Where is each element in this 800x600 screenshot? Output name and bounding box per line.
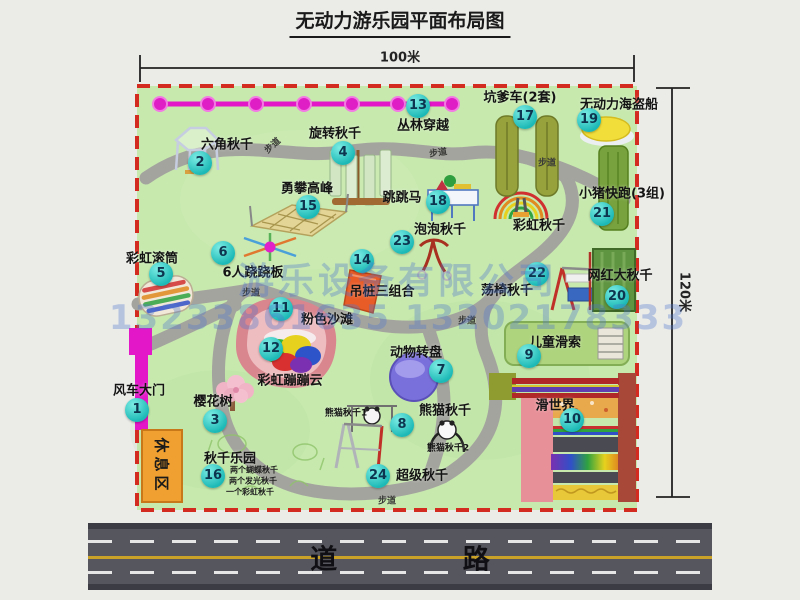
badge-12: 12: [259, 337, 283, 361]
badge-4: 4: [331, 141, 355, 165]
label-rainbow-swing-arches: 彩虹秋千: [513, 215, 565, 234]
badge-7: 7: [429, 359, 453, 383]
label-panda-swing-1: 熊猫秋千1: [325, 406, 367, 419]
label-rest-area: 休息区: [152, 437, 173, 494]
trail-label: 步道: [242, 286, 260, 299]
trail-label: 步道: [378, 494, 396, 507]
width-dimension-label: 100米: [380, 47, 420, 66]
badge-20: 20: [605, 285, 629, 309]
label-seesaw: 6人跷跷板: [222, 262, 283, 281]
badge-11: 11: [269, 297, 293, 321]
label-swing-chair: 荡椅秋千: [481, 280, 533, 299]
label-piggy-run: 小猪快跑(3组): [579, 183, 665, 202]
trail-label: 步道: [458, 314, 476, 327]
badge-13: 13: [406, 94, 430, 118]
label-panda-swing-2: 熊猫秋千2: [427, 441, 469, 454]
road-label: 道 路: [252, 537, 547, 576]
label-jungle-crossing: 丛林穿越: [397, 115, 449, 134]
badge-15: 15: [296, 195, 320, 219]
swing-park-note-3: 一个彩虹秋千: [226, 487, 274, 498]
badge-3: 3: [203, 409, 227, 433]
label-panda-swing: 熊猫秋千: [419, 400, 471, 419]
badge-23: 23: [390, 230, 414, 254]
badge-24: 24: [366, 464, 390, 488]
label-hexagon-swing: 六角秋千: [201, 134, 253, 153]
label-rotating-swing: 旋转秋千: [309, 123, 361, 142]
trail-label: 步道: [538, 156, 556, 169]
height-dimension-label: 120米: [677, 272, 696, 312]
label-bubble-swing: 泡泡秋千: [414, 219, 466, 238]
label-kart-track: 坑爹车(2套): [484, 87, 557, 106]
label-rainbow-roller: 彩虹滚筒: [126, 248, 178, 267]
swing-park-note-2: 两个发光秋千: [229, 476, 277, 487]
park-map-page: 无动力游乐园平面布局图 100米 120米 步道 步道 步道 步道 步道 步道 …: [0, 0, 800, 600]
label-super-swing: 超级秋千: [396, 465, 448, 484]
road: 道 路: [88, 523, 712, 590]
badge-10: 10: [560, 408, 584, 432]
badge-14: 14: [350, 249, 374, 273]
badge-18: 18: [426, 190, 450, 214]
badge-16: 16: [201, 464, 225, 488]
label-jumping-horse: 跳跳马: [382, 187, 421, 206]
badge-9: 9: [517, 344, 541, 368]
label-big-swing: 网红大秋千: [587, 265, 652, 284]
badge-1: 1: [125, 398, 149, 422]
badge-5: 5: [149, 262, 173, 286]
badge-22: 22: [525, 262, 549, 286]
label-rainbow-cloud: 彩虹蹦蹦云: [257, 370, 322, 389]
badge-8: 8: [390, 413, 414, 437]
label-pink-beach: 粉色沙滩: [301, 309, 353, 328]
label-hanging-post-combo: 吊桩三组合: [349, 281, 414, 300]
badge-19: 19: [577, 108, 601, 132]
page-title: 无动力游乐园平面布局图: [289, 6, 510, 38]
badge-21: 21: [590, 202, 614, 226]
label-climbing-peak: 勇攀高峰: [281, 178, 333, 197]
label-cherry-tree: 樱花树: [193, 391, 232, 410]
label-windmill-gate: 风车大门: [113, 380, 165, 399]
label-animal-turntable: 动物转盘: [390, 342, 442, 361]
swing-park-note-1: 两个蝴蝶秋千: [230, 465, 278, 476]
badge-2: 2: [188, 151, 212, 175]
badge-17: 17: [513, 105, 537, 129]
trail-label: 步道: [428, 144, 448, 159]
badge-6: 6: [211, 241, 235, 265]
